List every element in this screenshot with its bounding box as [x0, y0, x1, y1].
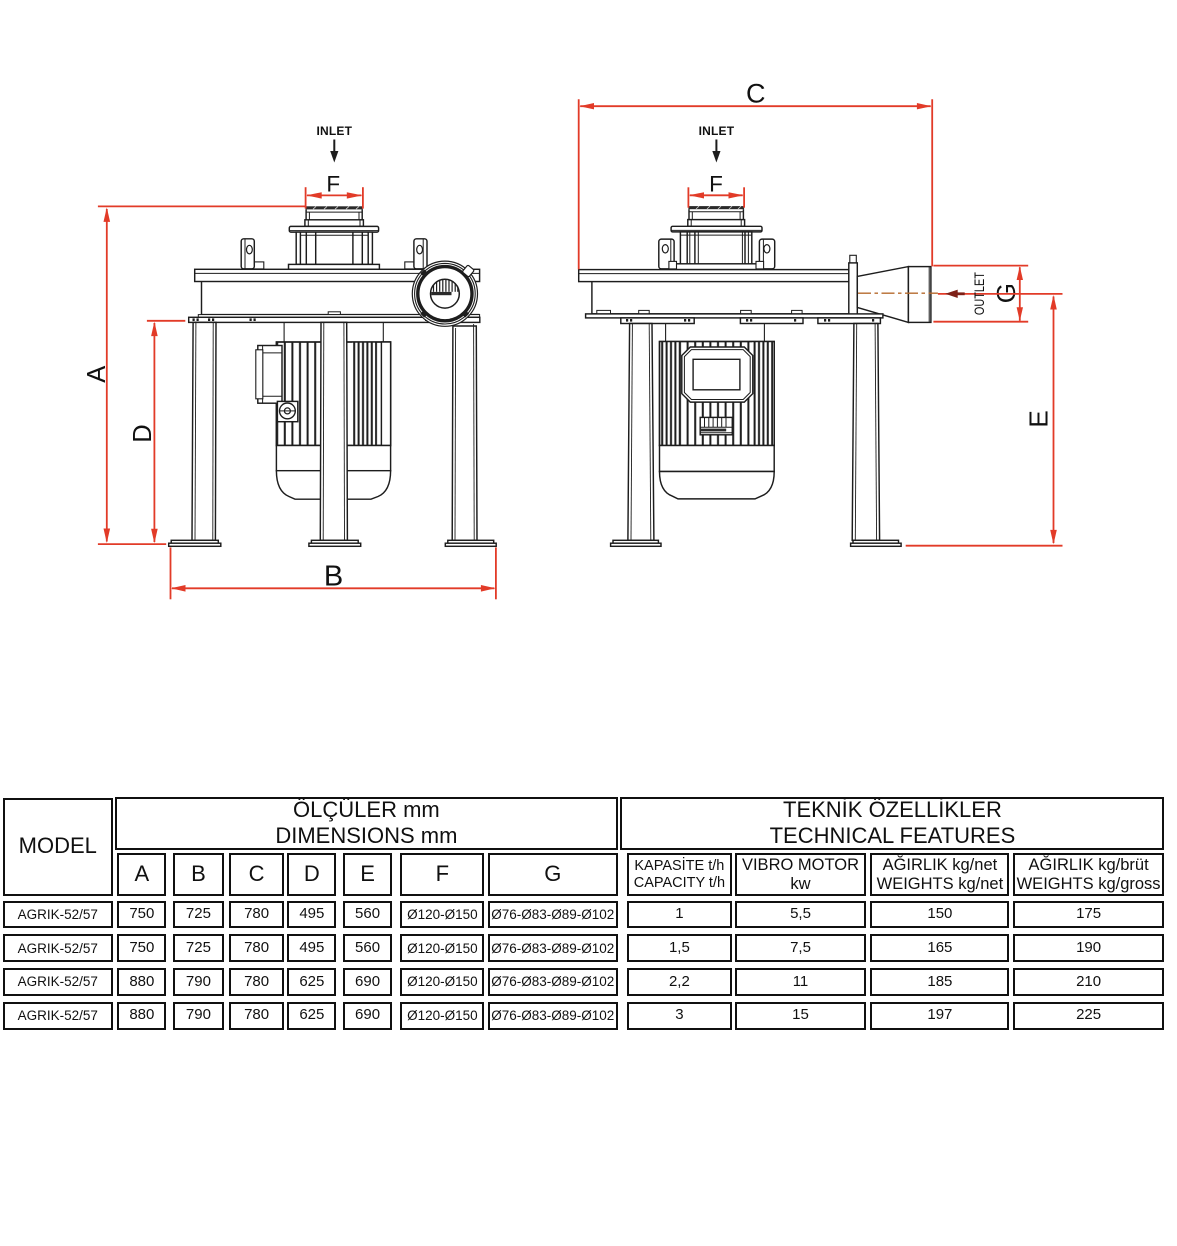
svg-text:E: E — [1024, 410, 1054, 427]
svg-text:D: D — [129, 424, 157, 442]
svg-text:A: A — [83, 366, 111, 383]
svg-text:F: F — [709, 171, 723, 196]
svg-text:C: C — [746, 79, 766, 109]
svg-text:OUTLET: OUTLET — [972, 272, 988, 315]
svg-text:INLET: INLET — [316, 124, 352, 138]
svg-text:F: F — [326, 171, 340, 196]
svg-text:B: B — [324, 561, 343, 593]
svg-text:INLET: INLET — [699, 124, 735, 138]
